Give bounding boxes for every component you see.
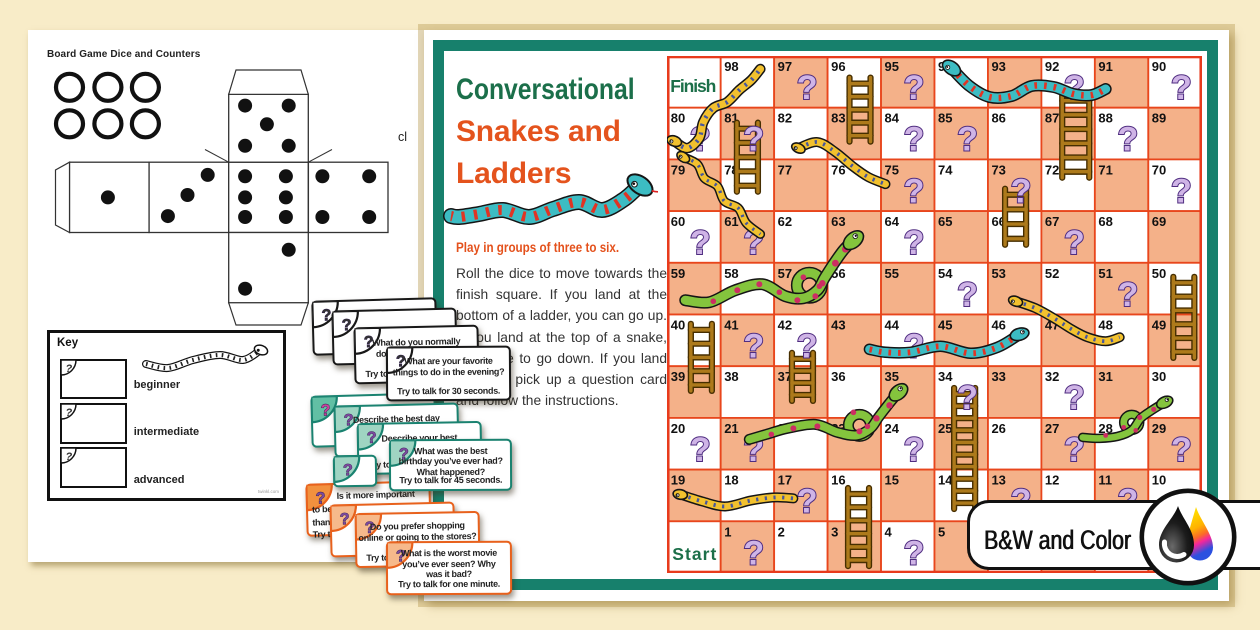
svg-text:18: 18 — [724, 473, 738, 488]
svg-text:92: 92 — [1045, 59, 1059, 74]
svg-text:?: ? — [65, 451, 72, 463]
svg-text:?: ? — [743, 534, 764, 572]
svg-text:?: ? — [797, 483, 818, 521]
svg-text:41: 41 — [724, 318, 738, 333]
svg-text:15: 15 — [885, 473, 899, 488]
svg-text:33: 33 — [991, 369, 1005, 384]
svg-text:32: 32 — [1045, 369, 1059, 384]
svg-text:45: 45 — [938, 318, 952, 333]
svg-text:82: 82 — [778, 111, 792, 126]
svg-text:?: ? — [1171, 172, 1192, 210]
svg-text:44: 44 — [885, 318, 900, 333]
svg-text:61: 61 — [724, 214, 738, 229]
svg-text:72: 72 — [1045, 162, 1059, 177]
svg-text:64: 64 — [885, 214, 900, 229]
svg-text:16: 16 — [831, 473, 845, 488]
svg-text:12: 12 — [1045, 473, 1059, 488]
svg-text:65: 65 — [938, 214, 952, 229]
svg-text:98: 98 — [724, 59, 738, 74]
svg-text:97: 97 — [778, 59, 792, 74]
svg-text:?: ? — [1171, 431, 1192, 469]
svg-text:27: 27 — [1045, 421, 1059, 436]
svg-text:60: 60 — [671, 214, 685, 229]
svg-text:42: 42 — [778, 318, 792, 333]
svg-text:90: 90 — [1152, 59, 1166, 74]
svg-text:19: 19 — [671, 473, 685, 488]
svg-text:29: 29 — [1152, 421, 1166, 436]
svg-text:26: 26 — [991, 421, 1005, 436]
svg-text:?: ? — [743, 121, 764, 159]
svg-text:?: ? — [1011, 172, 1032, 210]
svg-text:?: ? — [1117, 121, 1138, 159]
svg-text:68: 68 — [1098, 214, 1112, 229]
svg-text:?: ? — [797, 69, 818, 107]
svg-text:?: ? — [904, 534, 925, 572]
svg-text:73: 73 — [991, 162, 1005, 177]
svg-text:59: 59 — [671, 266, 685, 281]
svg-text:14: 14 — [938, 473, 953, 488]
svg-text:13: 13 — [991, 473, 1005, 488]
svg-text:74: 74 — [938, 162, 953, 177]
svg-text:89: 89 — [1152, 111, 1166, 126]
svg-text:46: 46 — [991, 318, 1005, 333]
svg-text:?: ? — [343, 462, 353, 479]
svg-text:?: ? — [957, 121, 978, 159]
svg-text:39: 39 — [671, 369, 685, 384]
svg-text:?: ? — [1064, 224, 1085, 262]
svg-text:?: ? — [797, 328, 818, 366]
svg-text:?: ? — [957, 276, 978, 314]
svg-text:86: 86 — [991, 111, 1005, 126]
svg-text:69: 69 — [1152, 214, 1166, 229]
svg-text:10: 10 — [1152, 473, 1166, 488]
svg-text:38: 38 — [724, 369, 738, 384]
svg-text:?: ? — [1171, 69, 1192, 107]
svg-text:?: ? — [904, 69, 925, 107]
svg-text:1: 1 — [724, 524, 731, 539]
svg-text:34: 34 — [938, 369, 953, 384]
svg-text:93: 93 — [991, 59, 1005, 74]
svg-text:2: 2 — [778, 524, 785, 539]
svg-text:5: 5 — [938, 524, 945, 539]
svg-text:50: 50 — [1152, 266, 1166, 281]
svg-text:3: 3 — [831, 524, 838, 539]
svg-text:40: 40 — [671, 318, 685, 333]
svg-text:84: 84 — [885, 111, 900, 126]
svg-text:?: ? — [904, 431, 925, 469]
svg-text:11: 11 — [1098, 473, 1112, 488]
svg-text:?: ? — [690, 224, 711, 262]
svg-text:49: 49 — [1152, 318, 1166, 333]
svg-text:Start: Start — [672, 544, 716, 564]
svg-text:?: ? — [65, 363, 72, 375]
svg-text:30: 30 — [1152, 369, 1166, 384]
svg-text:?: ? — [743, 328, 764, 366]
svg-text:21: 21 — [724, 421, 738, 436]
svg-text:31: 31 — [1098, 369, 1112, 384]
svg-text:?: ? — [904, 224, 925, 262]
svg-text:?: ? — [1117, 276, 1138, 314]
svg-text:52: 52 — [1045, 266, 1059, 281]
svg-text:71: 71 — [1098, 162, 1112, 177]
svg-text:87: 87 — [1045, 111, 1059, 126]
svg-text:17: 17 — [778, 473, 792, 488]
svg-text:Finish: Finish — [670, 76, 716, 96]
svg-text:35: 35 — [885, 369, 899, 384]
svg-text:24: 24 — [885, 421, 900, 436]
svg-text:95: 95 — [885, 59, 899, 74]
svg-text:36: 36 — [831, 369, 845, 384]
svg-text:?: ? — [904, 121, 925, 159]
svg-text:83: 83 — [831, 111, 845, 126]
svg-text:79: 79 — [671, 162, 685, 177]
svg-text:57: 57 — [778, 266, 792, 281]
svg-text:53: 53 — [991, 266, 1005, 281]
svg-text:63: 63 — [831, 214, 845, 229]
svg-text:48: 48 — [1098, 318, 1112, 333]
svg-text:25: 25 — [938, 421, 952, 436]
svg-text:?: ? — [957, 379, 978, 417]
svg-text:77: 77 — [778, 162, 792, 177]
svg-text:88: 88 — [1098, 111, 1112, 126]
svg-text:96: 96 — [831, 59, 845, 74]
svg-text:?: ? — [1064, 379, 1085, 417]
svg-text:54: 54 — [938, 266, 953, 281]
svg-text:91: 91 — [1098, 59, 1112, 74]
svg-text:43: 43 — [831, 318, 845, 333]
svg-text:85: 85 — [938, 111, 952, 126]
svg-text:20: 20 — [671, 421, 685, 436]
svg-text:?: ? — [690, 431, 711, 469]
svg-text:55: 55 — [885, 266, 899, 281]
svg-text:51: 51 — [1098, 266, 1112, 281]
svg-text:?: ? — [65, 407, 72, 419]
svg-text:80: 80 — [671, 111, 685, 126]
svg-text:62: 62 — [778, 214, 792, 229]
svg-text:67: 67 — [1045, 214, 1059, 229]
svg-text:4: 4 — [885, 524, 893, 539]
svg-text:70: 70 — [1152, 162, 1166, 177]
svg-text:?: ? — [904, 172, 925, 210]
svg-text:58: 58 — [724, 266, 738, 281]
svg-text:75: 75 — [885, 162, 899, 177]
